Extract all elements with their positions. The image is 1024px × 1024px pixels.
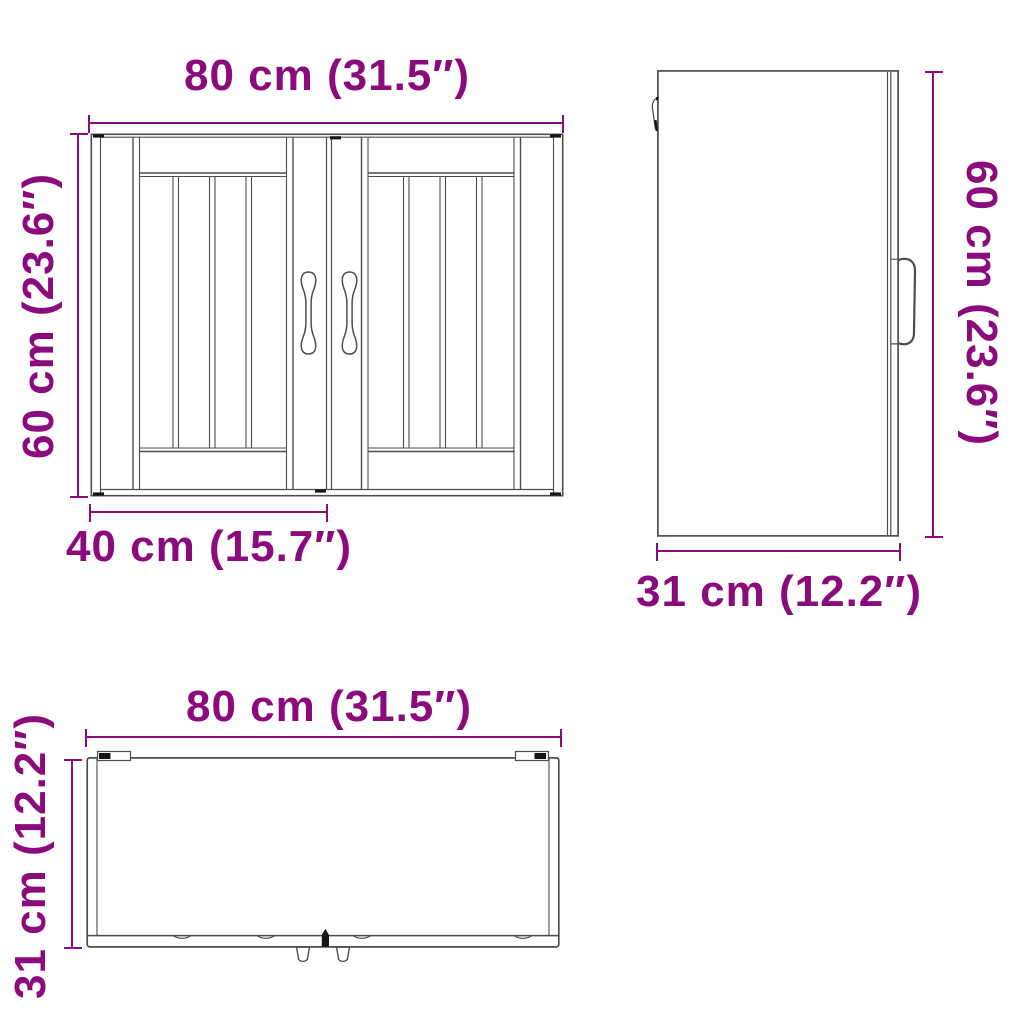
right-knob: [337, 947, 350, 961]
top-depth-dimension-line: [71, 760, 73, 948]
top-cabinet-outline: [87, 758, 559, 947]
side-height-dimension-line: [932, 72, 934, 537]
top-width-label: 80 cm (31.5″): [186, 682, 472, 732]
left-door-handle: [301, 272, 316, 354]
top-door-split-mark: [322, 929, 329, 947]
front-view-drawing: [90, 133, 564, 497]
left-knob: [297, 947, 310, 961]
side-height-label: 60 cm (23.6″): [956, 160, 1006, 446]
top-hinge-plates: [98, 752, 549, 761]
cabinet-dimension-diagram: 80 cm (31.5″) 60 cm (23.6″) 40 cm (15.7″…: [0, 0, 1024, 1024]
side-view-drawing: [649, 70, 925, 537]
side-door-handle: [891, 259, 915, 344]
side-depth-dimension-line: [657, 550, 900, 552]
top-knobs: [297, 947, 350, 961]
top-width-dimension-line: [86, 736, 561, 738]
front-width-label: 80 cm (31.5″): [184, 51, 470, 101]
front-left-door: [133, 137, 293, 489]
side-depth-label: 31 cm (12.2″): [636, 567, 922, 617]
top-depth-label: 31 cm (12.2″): [6, 713, 56, 999]
front-right-door: [362, 137, 521, 489]
front-door-handles: [301, 272, 357, 354]
front-door-width-label: 40 cm (15.7″): [66, 522, 352, 572]
top-view-drawing: [86, 749, 560, 963]
front-door-width-dimension-line: [90, 511, 327, 513]
front-height-dimension-line: [77, 134, 79, 497]
side-cabinet-outline: [658, 71, 898, 536]
front-height-label: 60 cm (23.6″): [14, 173, 64, 459]
front-width-dimension-line: [89, 122, 563, 124]
front-cabinet-outline: [91, 134, 562, 495]
right-door-handle: [342, 272, 357, 354]
